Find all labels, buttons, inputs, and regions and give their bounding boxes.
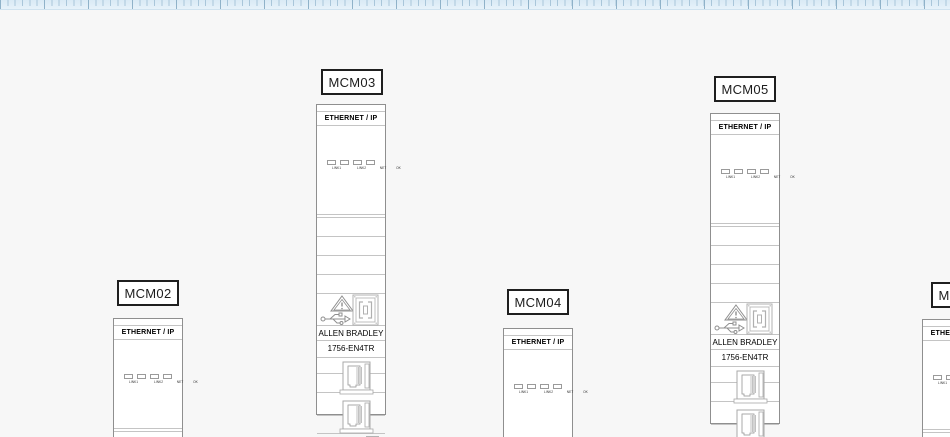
led-net-indicator	[540, 384, 549, 389]
led-row	[711, 169, 779, 174]
module-tag-text: MCM05	[721, 82, 768, 97]
module-empty-row	[711, 284, 779, 303]
led-link2-indicator	[734, 169, 743, 174]
led-ok-indicator	[760, 169, 769, 174]
led-net-indicator	[353, 160, 362, 165]
led-ok-indicator	[366, 160, 375, 165]
led-label-ok: OK	[583, 390, 588, 394]
module-empty-row	[317, 237, 385, 256]
model-number-text: 1756-EN4TR	[317, 341, 385, 358]
led-row	[114, 374, 182, 379]
led-label-link1: LINK1	[332, 166, 341, 170]
led-ok-indicator	[553, 384, 562, 389]
ethernet-port-icon	[733, 409, 769, 437]
module-header-text: ETHERNET / IP	[711, 121, 779, 135]
module-icons-section	[317, 294, 385, 326]
module-tag-label[interactable]: MCM05	[714, 76, 776, 102]
module-header-text: ETHERNET / IP	[317, 112, 385, 126]
led-labels: LINK1 LINK2 NET OK	[718, 175, 772, 185]
led-row	[504, 384, 572, 389]
module-empty-row	[317, 275, 385, 294]
module-top-strip	[711, 114, 779, 121]
led-label-ok: OK	[193, 380, 198, 384]
module-top-strip	[114, 319, 182, 326]
module-top-strip	[923, 320, 950, 327]
led-label-ok: OK	[396, 166, 401, 170]
led-status-section: LINK1 LINK2 NET OK	[711, 169, 779, 224]
led-row	[317, 160, 385, 165]
module-top-strip	[504, 329, 572, 336]
led-label-link2: LINK2	[751, 175, 760, 179]
led-label-net: NET	[774, 175, 780, 179]
led-labels: LINK1 LINK2 NET OK	[121, 380, 175, 390]
module-drawing[interactable]: ETHERNET / IP LINK1 LINK2 NET OK	[922, 319, 950, 437]
led-link2-indicator	[527, 384, 536, 389]
led-status-section: LINK1 LINK2 NET OK	[504, 384, 572, 437]
module-tag-text: MCM06	[938, 288, 950, 303]
ethernet-port-icon	[339, 361, 375, 395]
module-empty-row	[711, 246, 779, 265]
led-link2-indicator	[946, 375, 950, 380]
led-labels: LINK1 LINK2 NET OK	[930, 381, 950, 391]
module-empty-row	[317, 218, 385, 237]
module-empty-row	[923, 433, 950, 437]
module-drawing[interactable]: ETHERNET / IP LINK1 LINK2 NET OK	[503, 328, 573, 437]
module-tag-label[interactable]: MCM06	[931, 282, 950, 308]
led-status-section: LINK1 LINK2 NET OK	[317, 160, 385, 215]
led-label-link1: LINK1	[519, 390, 528, 394]
model-number-text: 1756-EN4TR	[711, 350, 779, 367]
module-empty-row	[317, 256, 385, 275]
usb-icon	[320, 311, 351, 326]
module-tag-text: MCM04	[514, 295, 561, 310]
led-net-indicator	[150, 374, 159, 379]
module-tag-text: MCM03	[328, 75, 375, 90]
warning-triangle-icon	[330, 295, 354, 312]
led-ok-indicator	[163, 374, 172, 379]
led-label-link2: LINK2	[357, 166, 366, 170]
module-empty-row	[114, 432, 182, 437]
module-drawing[interactable]: ETHERNET / IP LINK1 LINK2 NET OK	[113, 318, 183, 437]
brand-text: ALLEN BRADLEY	[317, 326, 385, 341]
module-header-text: ETHERNET / IP	[114, 326, 182, 340]
usb-icon	[714, 320, 745, 335]
module-empty-row	[711, 227, 779, 246]
module-header-text: ETHERNET / IP	[923, 327, 950, 341]
module-empty-row	[711, 265, 779, 284]
led-label-link2: LINK2	[544, 390, 553, 394]
led-label-net: NET	[567, 390, 573, 394]
led-link2-indicator	[340, 160, 349, 165]
led-status-section: LINK1 LINK2 NET OK	[114, 374, 182, 429]
led-link1-indicator	[933, 375, 942, 380]
ethernet-port-icon	[733, 370, 769, 404]
led-link1-indicator	[124, 374, 133, 379]
led-link1-indicator	[514, 384, 523, 389]
led-link1-indicator	[327, 160, 336, 165]
led-net-indicator	[747, 169, 756, 174]
led-label-net: NET	[177, 380, 183, 384]
ethernet-ports-section	[711, 367, 779, 437]
ethernet-ports-section	[317, 358, 385, 434]
module-tag-label[interactable]: MCM02	[117, 280, 179, 306]
module-icons-section	[711, 303, 779, 335]
led-row	[923, 375, 950, 380]
module-drawing[interactable]: ETHERNET / IP LINK1 LINK2 NET OK	[710, 113, 780, 424]
sd-card-slot-icon	[746, 303, 773, 335]
module-top-strip	[317, 105, 385, 112]
led-label-link1: LINK1	[938, 381, 947, 385]
module-tag-text: MCM02	[124, 286, 171, 301]
led-label-net: NET	[380, 166, 386, 170]
led-link2-indicator	[137, 374, 146, 379]
drawing-canvas[interactable]: MCM02 ETHERNET / IP LINK1 LINK2 NET OK	[0, 0, 950, 437]
led-labels: LINK1 LINK2 NET OK	[324, 166, 378, 176]
led-label-link2: LINK2	[154, 380, 163, 384]
module-tag-label[interactable]: MCM03	[321, 69, 383, 95]
led-status-section: LINK1 LINK2 NET OK	[923, 375, 950, 430]
ethernet-port-icon	[339, 400, 375, 434]
brand-text: ALLEN BRADLEY	[711, 335, 779, 350]
led-label-link1: LINK1	[726, 175, 735, 179]
led-label-link1: LINK1	[129, 380, 138, 384]
sd-card-slot-icon	[352, 294, 379, 326]
module-drawing[interactable]: ETHERNET / IP LINK1 LINK2 NET OK	[316, 104, 386, 415]
module-header-text: ETHERNET / IP	[504, 336, 572, 350]
warning-triangle-icon	[724, 304, 748, 321]
led-labels: LINK1 LINK2 NET OK	[511, 390, 565, 400]
led-label-ok: OK	[790, 175, 795, 179]
led-link1-indicator	[721, 169, 730, 174]
module-tag-label[interactable]: MCM04	[507, 289, 569, 315]
